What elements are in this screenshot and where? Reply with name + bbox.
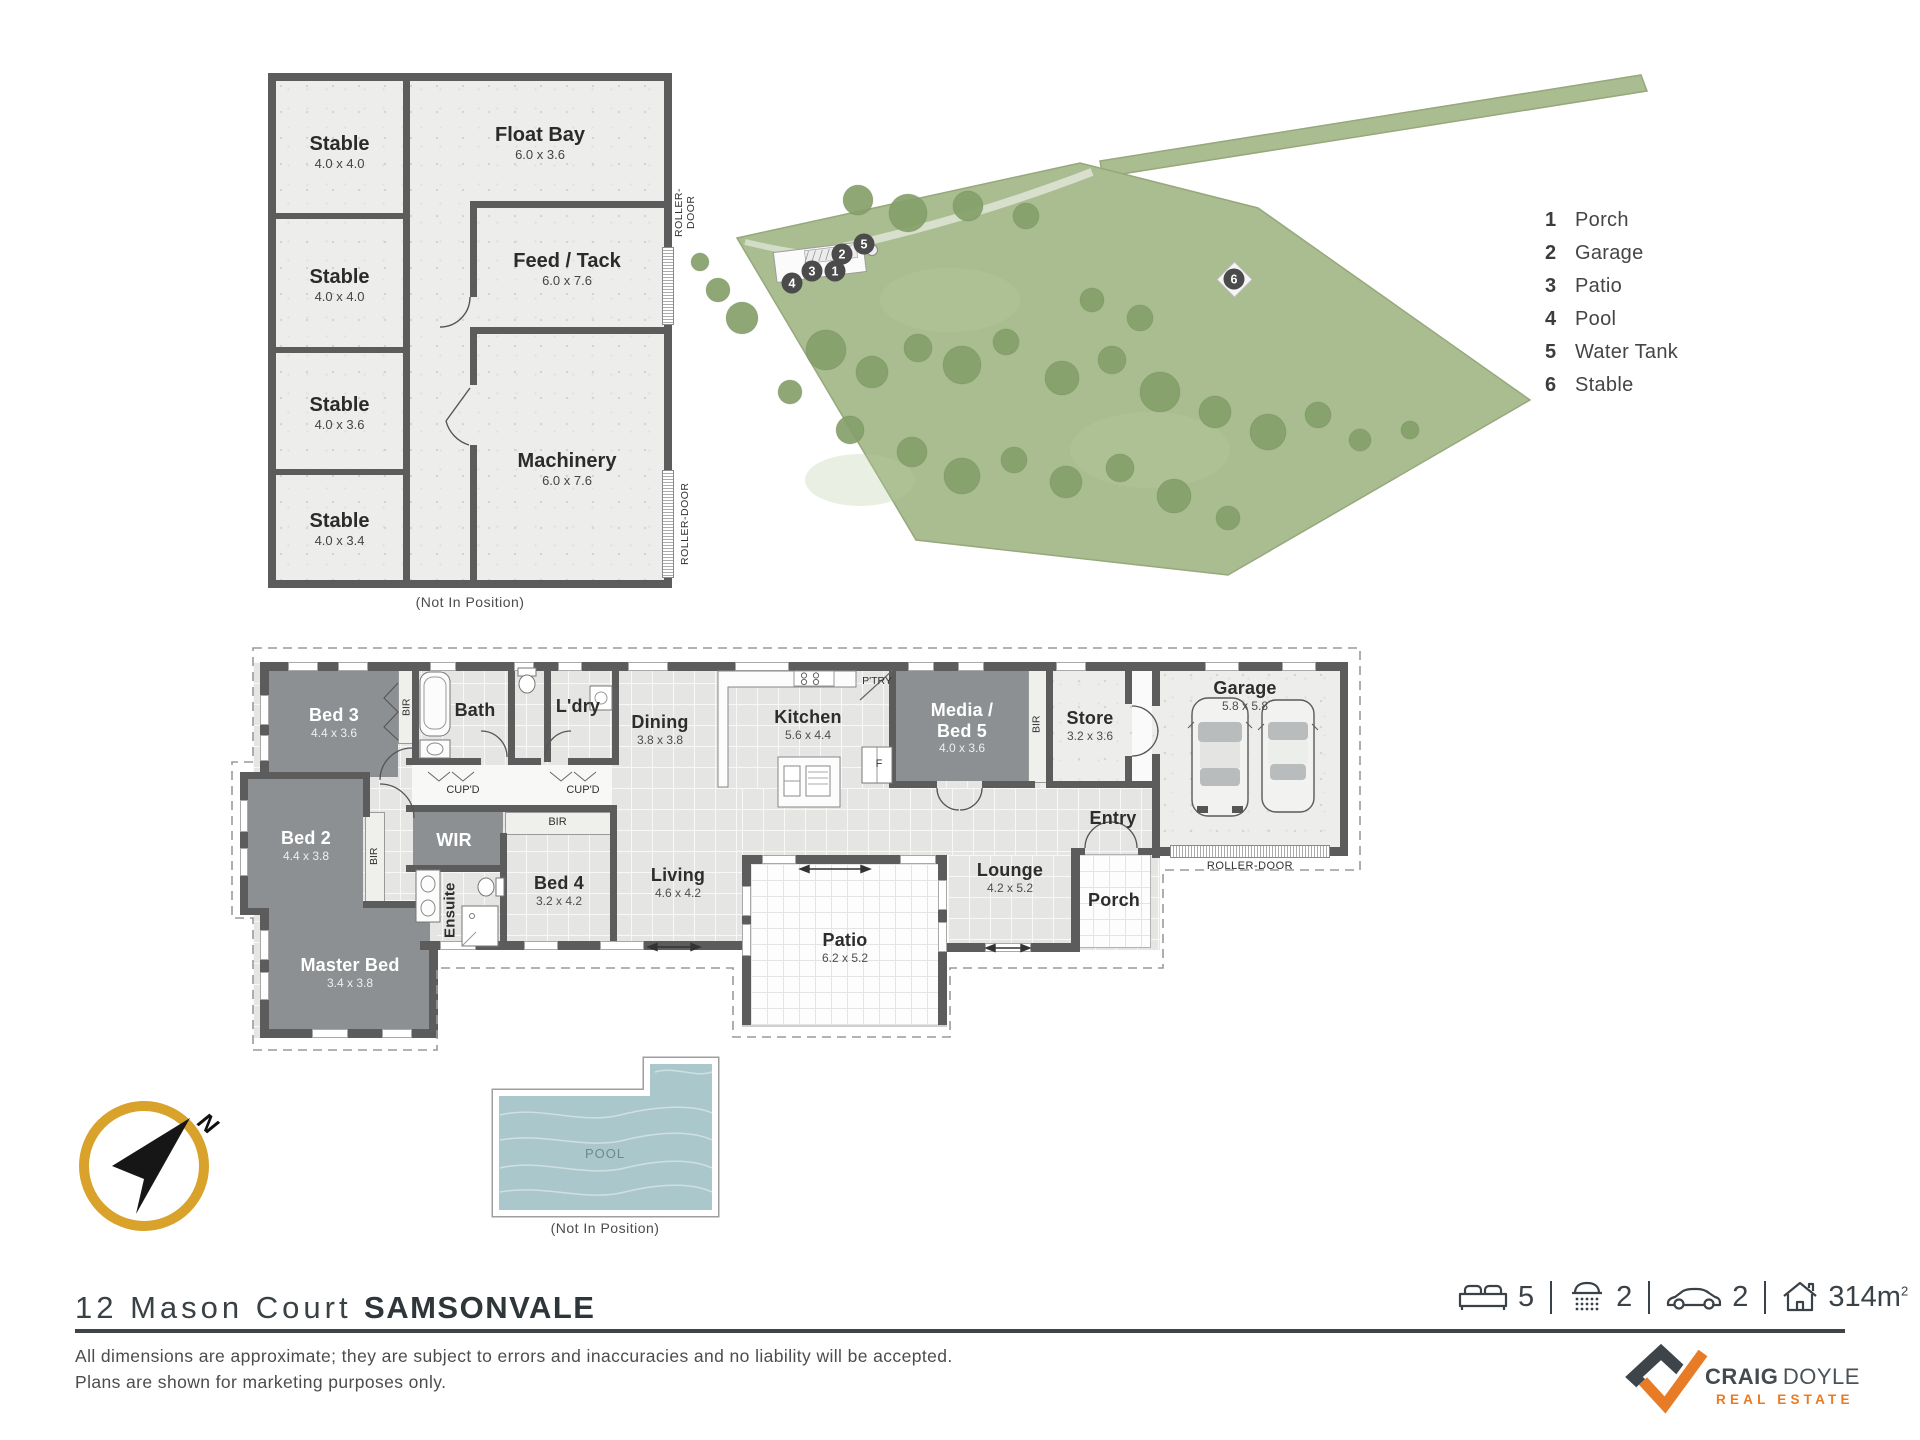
wall (268, 580, 672, 588)
site-legend: 1Porch 2Garage 3Patio 4Pool 5Water Tank … (1545, 204, 1678, 402)
house-area-icon (1782, 1280, 1818, 1314)
stable-not-in-position-note: (Not In Position) (330, 594, 610, 610)
room-label-bath: Bath (431, 700, 519, 721)
wall (1125, 662, 1132, 704)
window (762, 855, 796, 864)
wall (260, 662, 1348, 671)
wall (276, 213, 403, 219)
window (938, 880, 947, 910)
window (558, 662, 582, 671)
window (985, 943, 1031, 952)
room-label-kitchen: Kitchen 5.6 x 4.4 (748, 707, 868, 742)
wall (568, 758, 619, 765)
room-label-patio: Patio 6.2 x 5.2 (790, 930, 900, 965)
baths-count: 2 (1616, 1281, 1632, 1314)
wall (276, 469, 403, 475)
window (1205, 662, 1239, 671)
marker-4-circle (782, 273, 803, 294)
site-house-footprint (773, 242, 866, 283)
marker-3-number: 3 (809, 265, 816, 279)
site-boundary (737, 163, 1530, 575)
wall (268, 73, 672, 81)
bir-label: BIR (505, 816, 610, 828)
window (312, 1029, 348, 1038)
room-label-stable-2: Stable 4.0 x 4.0 (276, 266, 403, 305)
bir-label: BIR (1029, 694, 1044, 754)
wall (1152, 847, 1170, 856)
disclaimer-line-1: All dimensions are approximate; they are… (75, 1346, 953, 1367)
fridge-label: F (864, 758, 894, 770)
bir-label: BIR (366, 826, 382, 886)
wall (1152, 662, 1160, 706)
window (938, 922, 947, 952)
marker-5-circle (854, 234, 875, 255)
room-label-store: Store 3.2 x 3.6 (1048, 708, 1132, 743)
cupboard-label: CUP'D (540, 784, 626, 796)
driveway-strip (1100, 75, 1647, 177)
pantry-label: P'TRY (856, 675, 898, 687)
compass-ring (84, 1106, 204, 1226)
roller-door-label: ROLLER-DOOR (1170, 860, 1330, 872)
legend-item-pool: 4Pool (1545, 303, 1678, 336)
brand-word-doyle: DOYLE (1783, 1364, 1860, 1389)
window (430, 662, 456, 671)
wall (500, 805, 617, 812)
marker-2-circle (832, 244, 853, 265)
room-label-master-bed: Master Bed 3.4 x 3.8 (270, 955, 430, 990)
bir-label: BIR (399, 678, 414, 736)
room-label-entry: Entry (1075, 808, 1151, 829)
wall (363, 772, 370, 817)
wall (403, 81, 410, 580)
property-stats: 5 2 2 314m2 (1458, 1280, 1908, 1314)
site-water-tank (867, 245, 878, 256)
window (260, 930, 269, 960)
brand-logo-text: CRAIG DOYLE (1705, 1364, 1860, 1390)
room-label-bed2: Bed 2 4.4 x 3.8 (248, 828, 364, 863)
wall (470, 334, 477, 385)
beds-count: 5 (1518, 1281, 1534, 1314)
room-label-porch: Porch (1078, 890, 1150, 911)
pool-not-in-position-note: (Not In Position) (490, 1220, 720, 1236)
marker-1-number: 1 (832, 265, 839, 279)
wall (470, 201, 664, 208)
bed-icon (1458, 1281, 1508, 1313)
window (600, 941, 644, 950)
driveway-path (818, 172, 1092, 252)
wall (1152, 754, 1160, 858)
brand-word-craig: CRAIG (1705, 1364, 1778, 1389)
window (908, 662, 934, 671)
brand-logo-mark (1634, 1352, 1703, 1405)
wall (508, 758, 541, 765)
marker-1-circle (825, 261, 846, 282)
window (958, 662, 984, 671)
cars-count: 2 (1732, 1281, 1748, 1314)
car-icon (1666, 1282, 1722, 1312)
window (1282, 662, 1316, 671)
roller-door (1170, 845, 1330, 858)
wall (406, 805, 505, 812)
wall (240, 772, 248, 915)
window (628, 662, 668, 671)
legend-item-water-tank: 5Water Tank (1545, 336, 1678, 369)
wall (470, 327, 664, 334)
compass-north-label: N (192, 1108, 223, 1140)
legend-item-garage: 2Garage (1545, 237, 1678, 270)
room-label-machinery: Machinery 6.0 x 7.6 (470, 450, 664, 489)
wall (276, 347, 403, 353)
wall (1046, 781, 1132, 788)
room-label-float-bay: Float Bay 6.0 x 3.6 (415, 124, 665, 163)
window (1056, 662, 1086, 671)
wall (268, 73, 276, 588)
marker-6-number: 6 (1231, 273, 1238, 287)
compass: N (84, 1106, 223, 1226)
room-label-ldry: L'dry (540, 696, 616, 717)
legend-item-stable: 6Stable (1545, 369, 1678, 402)
window (260, 695, 269, 725)
driveway-path (745, 242, 812, 254)
cupboard-label: CUP'D (420, 784, 506, 796)
wall (363, 901, 437, 908)
site-map: 5 2 1 3 4 6 (691, 75, 1647, 575)
divider (1764, 1281, 1766, 1314)
grass-patch (1070, 412, 1230, 488)
area-value: 314m2 (1828, 1281, 1908, 1314)
window (382, 1029, 412, 1038)
wall (1340, 662, 1348, 856)
marker-6-circle (1224, 269, 1245, 290)
legend-item-patio: 3Patio (1545, 270, 1678, 303)
room-label-stable-1: Stable 4.0 x 4.0 (276, 133, 403, 172)
window (288, 662, 318, 671)
wall (1330, 847, 1348, 856)
footer-rule (75, 1329, 1845, 1333)
wall (429, 941, 438, 1038)
site-markers: 5 2 1 3 4 6 (782, 234, 1245, 294)
room-label-media-bed5: Media / Bed 5 4.0 x 3.6 (898, 700, 1026, 756)
compass-needle (112, 1118, 190, 1214)
marker-4-number: 4 (789, 277, 796, 291)
room-label-stable-4: Stable 4.0 x 3.4 (276, 510, 403, 549)
trees (691, 185, 1419, 530)
window (514, 662, 534, 671)
brand-tagline: REAL ESTATE (1716, 1392, 1854, 1407)
room-label-living: Living 4.6 x 4.2 (622, 865, 734, 900)
disclaimer-line-2: Plans are shown for marketing purposes o… (75, 1372, 446, 1393)
room-label-wir: WIR (408, 830, 500, 851)
site-stable-icon (1217, 262, 1252, 297)
window (260, 735, 269, 761)
grass-patch (880, 268, 1020, 332)
window (338, 662, 368, 671)
room-label-stable-3: Stable 4.0 x 3.6 (276, 394, 403, 433)
window (742, 886, 751, 916)
hall-strip (1132, 671, 1152, 781)
shower-icon (1568, 1280, 1606, 1314)
window (900, 855, 936, 864)
address: 12 Mason Court SAMSONVALE (75, 1290, 595, 1326)
wall (406, 758, 481, 765)
wall (889, 781, 937, 788)
divider (1648, 1281, 1650, 1314)
window (260, 972, 269, 1000)
room-label-ensuite: Ensuite (441, 868, 459, 952)
window (240, 848, 248, 876)
marker-5-number: 5 (861, 238, 868, 252)
divider (1550, 1281, 1552, 1314)
room-label-feed-tack: Feed / Tack 6.0 x 7.6 (470, 250, 664, 289)
room-label-bed4: Bed 4 3.2 x 4.2 (505, 873, 613, 908)
address-suburb: SAMSONVALE (364, 1290, 595, 1325)
room-label-garage: Garage 5.8 x 5.8 (1180, 678, 1310, 713)
roller-door-label: ROLLER-DOOR (678, 172, 692, 252)
room-label-lounge: Lounge 4.2 x 5.2 (950, 860, 1070, 895)
address-street: 12 Mason Court (75, 1290, 352, 1325)
wall (982, 781, 1035, 788)
legend-item-porch: 1Porch (1545, 204, 1678, 237)
room-label-bed3: Bed 3 4.4 x 3.6 (270, 705, 398, 740)
marker-3-circle (802, 261, 823, 282)
patio-edge (742, 1025, 947, 1027)
wall (240, 772, 370, 779)
roller-door-label: ROLLER-DOOR (678, 468, 692, 580)
pool (496, 1061, 715, 1213)
window (240, 800, 248, 832)
marker-2-number: 2 (839, 248, 846, 262)
window (735, 662, 789, 671)
window (742, 924, 751, 956)
room-label-dining: Dining 3.8 x 3.8 (600, 712, 720, 747)
floorplan-page: { "site_map": { "legend": [ {"num":"1","… (0, 0, 1920, 1440)
grass-patch (805, 454, 915, 506)
pool-label: POOL (545, 1146, 665, 1161)
window (524, 941, 558, 950)
